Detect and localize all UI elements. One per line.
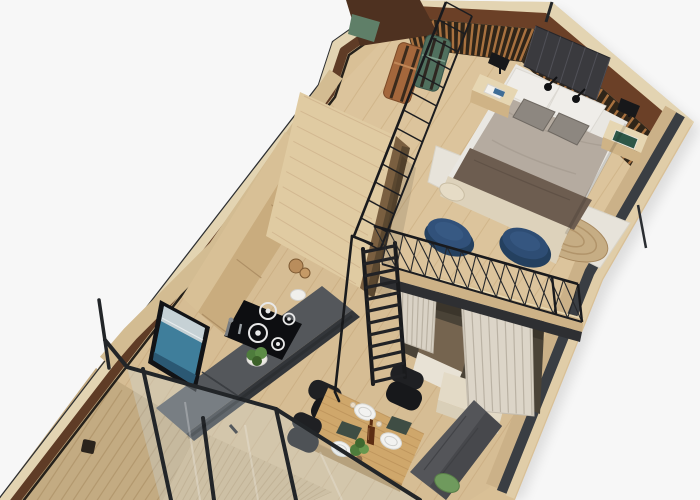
- outdoor-switch-box: [81, 439, 96, 454]
- render-canvas: [0, 0, 700, 500]
- white-bowl: [291, 290, 306, 301]
- drinking-glass: [350, 402, 355, 407]
- tiny-house-floorplan-render: [0, 0, 700, 500]
- drinking-glass-2: [376, 421, 381, 426]
- cutting-board-small: [300, 268, 310, 278]
